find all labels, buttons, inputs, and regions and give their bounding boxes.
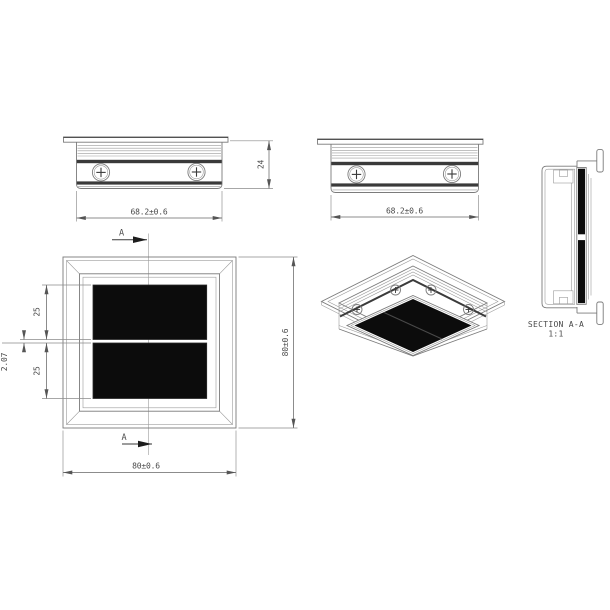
view-front: A A 25 25 2.07 80±0.6: [0, 229, 298, 477]
lower-band: [77, 181, 222, 184]
lower-band: [331, 183, 478, 186]
engineering-drawing: 68.2±0.6 24: [0, 0, 610, 610]
view-section: SECTION A-A 1:1: [528, 150, 603, 339]
screw-icon: [92, 164, 109, 181]
cut-arrow-top: A: [112, 229, 147, 244]
dim-width: 68.2±0.6: [331, 195, 479, 221]
top-hook: [577, 150, 603, 172]
cut-label-top: A: [119, 229, 124, 239]
dim-segment-upper-label: 25: [33, 307, 42, 317]
solar-panel-lower: [93, 343, 207, 399]
dim-width-label: 68.2±0.6: [386, 207, 423, 216]
cut-arrow-bottom: A: [121, 433, 152, 447]
dim-width-label: 80±0.6: [132, 462, 160, 471]
outer-frame: [63, 257, 236, 428]
view-side-left: 68.2±0.6 24: [64, 137, 274, 222]
dim-gap-label: 2.07: [0, 352, 9, 371]
section-scale-label: 1:1: [548, 330, 563, 339]
screw-icon: [188, 163, 205, 180]
rib-lines: [78, 146, 222, 156]
screw-icon: [348, 166, 365, 183]
upper-band: [77, 160, 222, 163]
rib-lines: [332, 148, 478, 158]
drawing-canvas: 68.2±0.6 24: [0, 0, 610, 610]
cut-label-bottom: A: [121, 433, 126, 443]
section-label: SECTION A-A: [528, 320, 584, 329]
dim-width-label: 68.2±0.6: [131, 208, 168, 217]
dim-bottom: 80±0.6: [63, 431, 236, 477]
dim-height-label: 80±0.6: [281, 328, 290, 356]
dim-width: 68.2±0.6: [77, 191, 223, 222]
dim-height-label: 24: [257, 160, 266, 170]
dim-right: 80±0.6: [239, 257, 298, 428]
screw-icon: [443, 165, 460, 182]
panel-section-strip: [577, 168, 586, 305]
dim-height: 24: [224, 141, 273, 189]
dim-segment-lower-label: 25: [33, 366, 42, 376]
solar-panel-upper: [93, 285, 207, 340]
view-side-front: 68.2±0.6: [318, 139, 484, 221]
upper-band: [331, 162, 478, 165]
dim-left: 25 25 2.07: [0, 285, 91, 399]
view-isometric: [322, 256, 505, 357]
